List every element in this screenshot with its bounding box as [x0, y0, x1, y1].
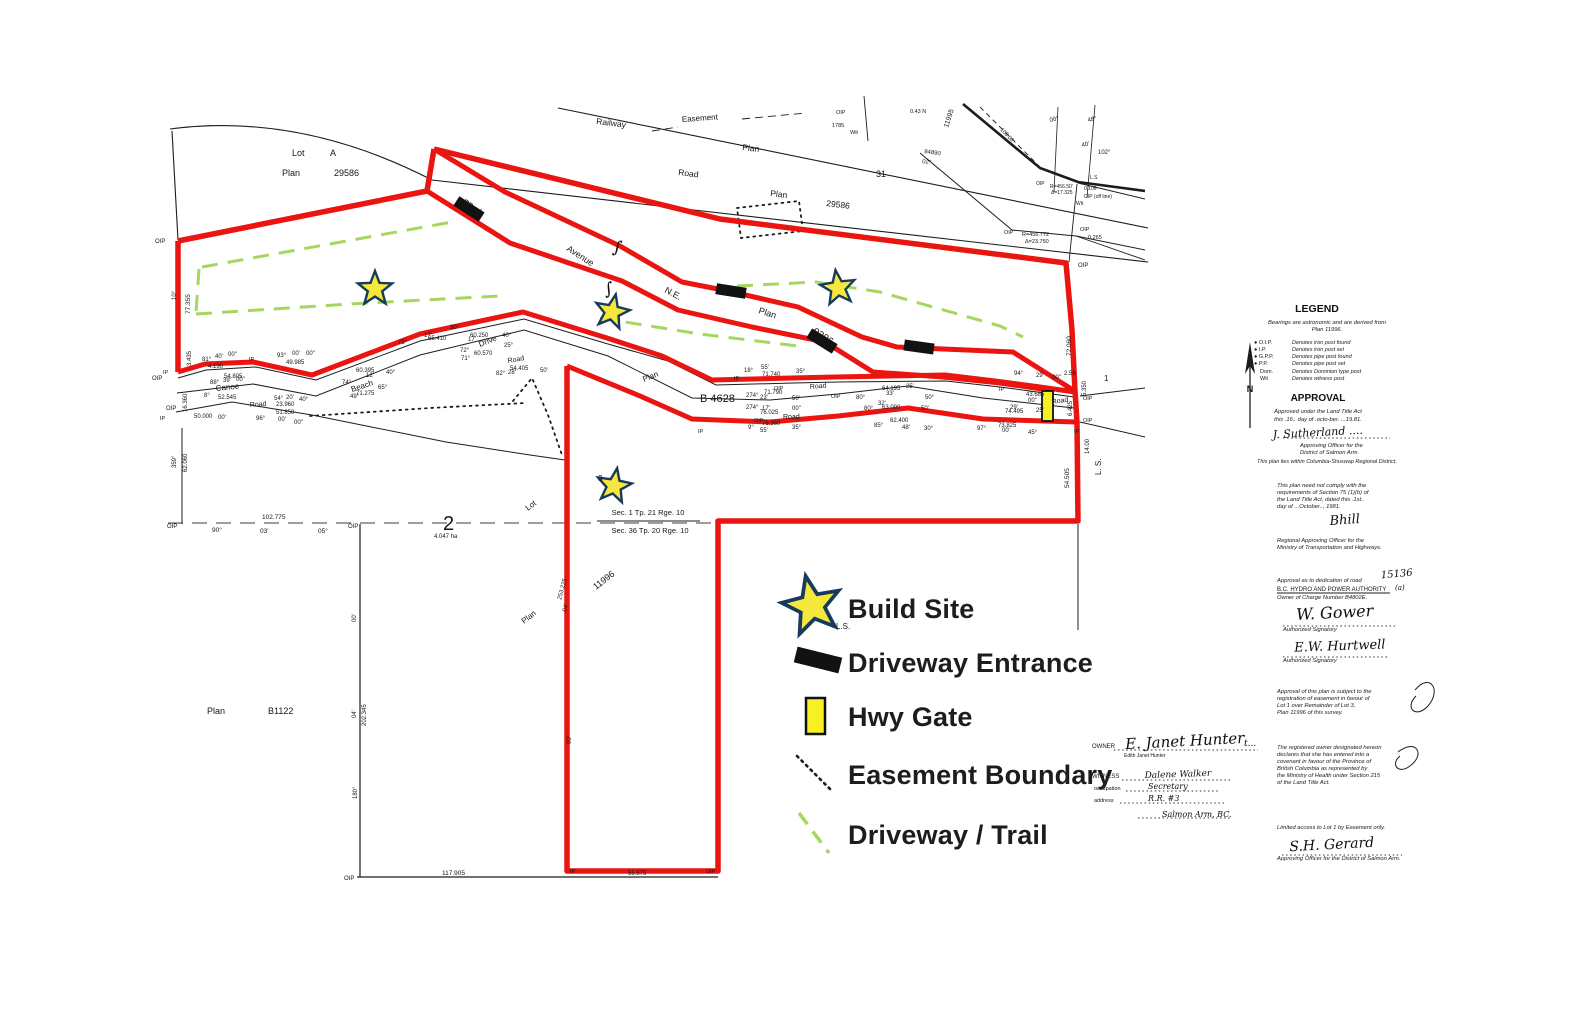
script-flourish-2: [1395, 747, 1418, 770]
map-label: 93°: [277, 353, 287, 359]
map-label: Plan 11996 of this survey.: [1277, 710, 1343, 716]
easement-dotted-rectangle: [737, 201, 803, 238]
map-label: 76.360: [762, 421, 781, 427]
build-site-star-1: [358, 271, 392, 304]
map-label: OIP: [1083, 418, 1093, 424]
map-label: Limited access to Lot 1 by Easement only…: [1277, 825, 1385, 831]
map-label: 50°: [925, 395, 935, 401]
map-label: 49.985: [286, 360, 305, 366]
map-label: IP: [698, 429, 704, 435]
map-label: 02°: [922, 159, 932, 166]
map-label: declares that she has entered into a: [1277, 752, 1370, 758]
map-label: 102°: [1098, 150, 1111, 156]
map-label: IP: [570, 869, 576, 875]
map-label: 65.410: [428, 336, 447, 342]
map-label: Approval as to dedication of road: [1276, 578, 1363, 584]
map-label: OIP: [774, 386, 784, 392]
map-label: 274°: [746, 393, 759, 399]
map-label: IP: [1074, 429, 1080, 435]
map-label: 18°: [744, 368, 754, 374]
map-label: J. Sutherland ....: [1270, 424, 1363, 442]
map-label: Plan: [207, 706, 225, 716]
map-label: 31: [876, 169, 886, 179]
map-label: Plan: [520, 609, 538, 626]
map-label: 00': [352, 614, 358, 622]
map-label: 82°: [496, 371, 506, 377]
survey-plan-page: LotAPlan29586RailwayEasementPlanRoadPlan…: [0, 0, 1570, 1010]
map-label: 274°: [746, 405, 759, 411]
map-label: 1: [1104, 374, 1109, 383]
map-label: day of ...October.., 1981.: [1277, 504, 1341, 510]
easement-tick: [864, 96, 868, 141]
map-label: 4.130: [208, 364, 224, 370]
map-label: 62.060: [183, 453, 189, 472]
south-parcel-line: [176, 402, 565, 460]
map-label: 23.960: [276, 402, 295, 408]
west-boundary-line: [172, 131, 178, 240]
map-label: This plan lies within Columbia-Shuswap R…: [1257, 459, 1397, 465]
map-label: 50.000: [194, 414, 213, 420]
map-label: N.E.: [663, 285, 683, 302]
map-label: 54.505: [1064, 468, 1071, 488]
trail-green-dash-icon: [799, 813, 829, 853]
map-label: Denotes witness post: [1292, 376, 1345, 382]
map-label: Denotes Dominion type post: [1292, 369, 1362, 375]
map-label: L.S: [1090, 175, 1098, 181]
map-label: the Land Title Act, dated this .1st..: [1277, 497, 1364, 503]
map-label: 97°: [977, 426, 987, 432]
map-label: Road: [1051, 397, 1069, 406]
map-label: 72°: [460, 348, 470, 354]
map-label: ● I.P.: [1254, 347, 1267, 353]
driveway-entrance-bar-4: [903, 339, 934, 354]
railway-line: [558, 108, 1148, 228]
map-label: Secretary: [1148, 782, 1188, 791]
map-label: 15136: [1380, 568, 1413, 582]
map-label: B1122: [268, 706, 293, 716]
map-label: address: [1094, 798, 1114, 804]
map-label: Authorized Signatory: [1282, 658, 1338, 664]
map-label: District of Salmon Arm.: [1300, 450, 1359, 456]
map-label: 65°: [378, 385, 388, 391]
trail-connector: [196, 269, 199, 313]
map-label: 77.355: [185, 294, 192, 314]
map-label: 48°: [1087, 116, 1098, 124]
map-label: OIP: [831, 394, 841, 400]
map-label: E.W. Hurtwell: [1293, 637, 1386, 655]
hwy-gate-icon: [806, 698, 825, 734]
legend-row-hwy-gate: Hwy Gate: [806, 698, 973, 734]
map-label: IP: [160, 416, 166, 422]
map-label: Δ=23.750: [1025, 239, 1049, 245]
map-label: Lot: [524, 498, 539, 512]
map-label: 00': [278, 417, 286, 423]
boundary-avenue-north: [434, 149, 1073, 390]
map-label: this .16.. day of .octo-ber. ...19.81.: [1274, 417, 1362, 423]
map-label: Canoe: [215, 382, 240, 393]
map-label: Wit: [1076, 201, 1084, 207]
map-label: 40': [215, 354, 223, 360]
map-label: W. Gower: [1296, 601, 1375, 624]
map-label: Lot: [292, 148, 305, 158]
trail-right: [737, 282, 1023, 337]
map-label: 11995: [943, 108, 956, 128]
map-label: 71°: [461, 356, 471, 362]
map-label: Authorized Signatory: [1282, 627, 1338, 633]
map-label: 5.350: [1082, 380, 1088, 396]
map-label: Sec. 36 Tp. 20 Rge. 10: [612, 526, 689, 535]
map-label: 74.495: [1005, 409, 1024, 415]
legend-build-site-label: Build Site: [848, 594, 975, 624]
map-label: Edith Janet Hunter: [1124, 753, 1166, 759]
map-label: 48': [902, 425, 910, 431]
map-label: A: [330, 148, 336, 158]
map-label: OIP: [1036, 181, 1045, 187]
map-label: 00°: [567, 734, 573, 744]
map-label: OIP: [167, 524, 177, 530]
easement-dotted-line-icon: [797, 756, 833, 792]
legend-row-driveway-trail: Driveway / Trail: [799, 813, 1048, 853]
map-label: Owner of Charge Number B4802E.: [1277, 595, 1367, 601]
map-label: 25': [1036, 408, 1044, 414]
map-label: 00°: [1049, 116, 1060, 124]
map-label: 85°: [874, 423, 884, 429]
map-label: 52.545: [218, 395, 237, 401]
map-label: 35°: [792, 425, 802, 431]
map-label: 10°: [172, 290, 178, 300]
map-label: 03': [260, 528, 268, 535]
map-label: 30°: [450, 325, 460, 331]
map-label: Plan: [757, 305, 777, 320]
map-label: Road: [678, 167, 700, 179]
map-label: Dalene Walker: [1143, 769, 1212, 781]
map-label: ● O.I.P.: [1254, 340, 1273, 346]
map-label: 0.106: [1084, 186, 1097, 192]
map-label: (a): [1395, 584, 1405, 592]
map-label: 14.00: [1085, 438, 1091, 454]
map-label: 0.265: [1088, 235, 1102, 241]
map-label: 25': [906, 384, 914, 390]
map-label: R.R. #3: [1147, 794, 1179, 803]
map-label: Road: [507, 355, 525, 365]
legend-row-driveway-entrance: Driveway Entrance: [794, 647, 1093, 678]
easement-boundary-dotted-1: [310, 403, 525, 416]
map-label: OIP: [344, 876, 354, 882]
map-label: Denotes pipe post set: [1292, 361, 1346, 367]
map-label: 00': [292, 351, 300, 357]
map-label: 71.740: [762, 372, 781, 378]
map-label: 73°: [398, 340, 408, 346]
map-label: the Ministry of Health under Section 215: [1277, 773, 1381, 779]
map-label: Wit: [1260, 376, 1268, 382]
map-label: LEGEND: [1295, 303, 1339, 315]
map-label: APPROVAL: [1291, 393, 1346, 404]
map-label: 9°: [748, 425, 754, 431]
map-label: Denotes iron post set: [1292, 347, 1344, 353]
map-label: 00'': [792, 406, 801, 412]
map-label: OIP: [1004, 230, 1014, 236]
easement-boundary-dotted-2: [513, 378, 562, 455]
map-label: Wit: [850, 130, 858, 136]
map-label: 60.570: [474, 351, 493, 357]
map-label: 8°: [204, 393, 210, 399]
map-label: 81°: [202, 357, 212, 363]
map-label: Sec. 1 Tp. 21 Rge. 10: [612, 508, 685, 517]
map-label: 55.675: [628, 871, 647, 877]
map-label: Bhill: [1328, 512, 1360, 529]
map-label: IP: [734, 376, 740, 382]
map-label: Denotes iron post found: [1292, 340, 1351, 346]
map-label: Plan: [770, 188, 788, 200]
map-label: 29586: [334, 168, 359, 178]
map-label: 50': [921, 406, 929, 412]
legend-driveway-entrance-label: Driveway Entrance: [848, 648, 1093, 678]
map-label: covenant in favour of the Province of: [1277, 759, 1372, 765]
map-label: 40°: [386, 370, 396, 376]
map-label: OIP: [166, 406, 176, 412]
map-label: 55': [760, 428, 768, 434]
map-label: 00'': [228, 352, 237, 358]
driveway-entrance-bar-icon: [794, 647, 843, 674]
map-label: 80°: [856, 395, 866, 401]
map-label: Plan: [282, 168, 300, 178]
right-fan-line-2: [1080, 422, 1145, 437]
map-label: 05°: [318, 527, 328, 535]
map-label: IP: [163, 370, 169, 376]
map-label: Approval of this plan is subject to the: [1276, 689, 1372, 695]
map-label: 50': [792, 396, 800, 402]
map-label: OIP: [754, 418, 764, 424]
legend-easement-boundary-label: Easement Boundary: [848, 760, 1112, 790]
map-label: 29': [1036, 373, 1044, 379]
map-label: 55': [761, 365, 769, 371]
map-label: 29586: [826, 198, 851, 211]
map-label: Denotes pipe post found: [1292, 354, 1353, 360]
map-label: 30°: [924, 426, 934, 432]
map-label: of the Land Title Act.: [1277, 780, 1330, 786]
map-label: 00'': [1052, 375, 1061, 381]
map-label: Bearings are astronomic and are derived …: [1268, 320, 1386, 326]
map-label: requirements of Section 75 (1)(b) of: [1277, 490, 1370, 496]
map-label: Railway: [596, 116, 627, 130]
right-fan-line-1: [1080, 388, 1145, 396]
map-label: L. S.: [1094, 459, 1103, 475]
map-label: IP: [999, 387, 1005, 393]
map-label: Plan: [641, 370, 659, 384]
map-label: 17': [468, 337, 476, 343]
road-south-line: [432, 180, 1148, 262]
map-label: 3: [598, 474, 603, 483]
map-label: OIP: [1080, 227, 1090, 233]
map-label: 00'': [1028, 398, 1037, 404]
map-label: OWNER: [1092, 744, 1116, 750]
map-label: B.C. HYDRO AND POWER AUTHORITY: [1277, 587, 1386, 593]
map-label: British Columbia as represented by: [1277, 766, 1368, 772]
map-label: 45°: [1028, 430, 1038, 436]
map-label: Road: [250, 401, 267, 409]
map-label: OIP: [706, 869, 716, 875]
map-label: OIP (off line): [1084, 194, 1112, 200]
map-label: Approving Officer for the: [1299, 443, 1364, 449]
map-label: R=456.772: [1022, 232, 1049, 238]
map-label: B 4628: [700, 393, 735, 405]
map-label: OIP: [152, 376, 162, 382]
legend-ls-sub-label: L.S.: [836, 622, 850, 631]
map-label: 51.850: [276, 410, 295, 416]
annotation-legend: Build Site L.S. Driveway Entrance Hwy Ga…: [777, 570, 1112, 853]
map-label: E. Janet Hunter: [1124, 729, 1246, 753]
map-label: 202.345: [362, 704, 368, 726]
map-label: 94890: [924, 149, 942, 157]
map-label: Regional Approving Officer for the: [1277, 538, 1365, 544]
map-label: OIP: [155, 239, 165, 245]
build-site-star-4: [595, 465, 634, 503]
map-label: 00'': [306, 351, 315, 357]
map-label: 180°: [353, 786, 359, 799]
legend-driveway-trail-label: Driveway / Trail: [848, 820, 1048, 850]
map-label: 71.275: [356, 391, 375, 397]
map-label: ● P.P.: [1254, 361, 1268, 367]
map-label: 359°: [172, 455, 178, 468]
script-flourish-1: [1411, 682, 1434, 711]
map-label: 35°: [796, 369, 806, 375]
map-label: 2.58: [1064, 371, 1076, 377]
map-label: 20': [286, 395, 294, 401]
map-label: 90°: [212, 526, 222, 534]
map-label: t...: [1244, 739, 1256, 749]
map-label: 102.775: [262, 514, 286, 521]
map-label: 4.047 ha: [434, 534, 458, 540]
map-label: IP: [249, 357, 255, 363]
map-label: 00': [1002, 428, 1010, 434]
map-label: Approved under the Land Title Act: [1273, 409, 1362, 415]
map-label: Dom.: [1260, 369, 1274, 375]
trail-lower-left: [196, 296, 500, 314]
legend-row-easement-boundary: Easement Boundary: [797, 756, 1112, 792]
easement-dash-line: [652, 113, 806, 131]
map-label: Lot 1 over Remainder of Lot 3,: [1277, 703, 1355, 709]
map-label: S.H. Gerard: [1289, 835, 1375, 855]
map-label: This plan need not comply with the: [1277, 483, 1367, 489]
map-label: Plan: [742, 142, 760, 154]
road-centerline-north: [178, 319, 1074, 397]
map-label: Road: [810, 383, 827, 391]
map-label: 40': [1081, 141, 1090, 148]
map-label: Road: [783, 414, 800, 421]
map-label: 1785: [832, 123, 844, 129]
map-label: ● G.P.P.: [1254, 354, 1274, 360]
map-label: 16.360: [183, 393, 189, 412]
dotted-underlines: [1114, 438, 1434, 855]
map-label: Plan 11996.: [1312, 327, 1343, 333]
legend-hwy-gate-label: Hwy Gate: [848, 702, 973, 732]
map-label: 76.025: [760, 410, 779, 416]
map-label: ∫: [603, 279, 615, 300]
map-label: 00'': [294, 420, 303, 426]
map-label: Easement: [682, 112, 719, 124]
map-label: 96°: [256, 416, 266, 422]
map-label: 80°: [864, 406, 874, 412]
map-label: 94°: [1014, 371, 1024, 377]
map-label: registration of easement in favour of: [1277, 696, 1371, 702]
map-label: OIP: [836, 110, 846, 116]
map-label: 00': [218, 415, 226, 421]
map-label: 72.060: [1066, 336, 1073, 356]
map-label: N: [1247, 384, 1254, 394]
map-label: 62.400: [890, 418, 909, 424]
survey-plan-svg: LotAPlan29586RailwayEasementPlanRoadPlan…: [0, 0, 1570, 1010]
map-label: 50': [540, 368, 548, 374]
map-label: 3.435: [187, 350, 193, 366]
map-label: OIP: [348, 524, 358, 530]
map-label: 6.425: [1068, 400, 1074, 416]
map-label: Salmon Arm, BC.: [1162, 810, 1232, 819]
legend-row-build-site: Build Site L.S.: [777, 570, 974, 636]
map-label: The registered owner designated hereon: [1277, 745, 1381, 751]
map-label: 40°: [299, 397, 309, 403]
map-label: OIP: [1078, 263, 1088, 269]
map-label: 2: [443, 513, 454, 535]
map-label: Ministry of Transportation and Highways.: [1277, 545, 1382, 551]
map-label: 04': [352, 710, 358, 718]
map-label: 11996: [591, 569, 616, 592]
map-label: 28': [508, 370, 516, 376]
map-label: 40°: [502, 333, 512, 339]
map-label: 63.090: [882, 405, 901, 411]
map-label: 0.43 N: [910, 109, 926, 115]
map-label: 25°: [504, 343, 514, 349]
map-label: 117.905: [442, 870, 465, 877]
map-label: Δ=17.325: [1051, 190, 1073, 196]
map-label: Approving Officer for the District of Sa…: [1276, 856, 1401, 862]
map-label: 33': [886, 391, 894, 397]
